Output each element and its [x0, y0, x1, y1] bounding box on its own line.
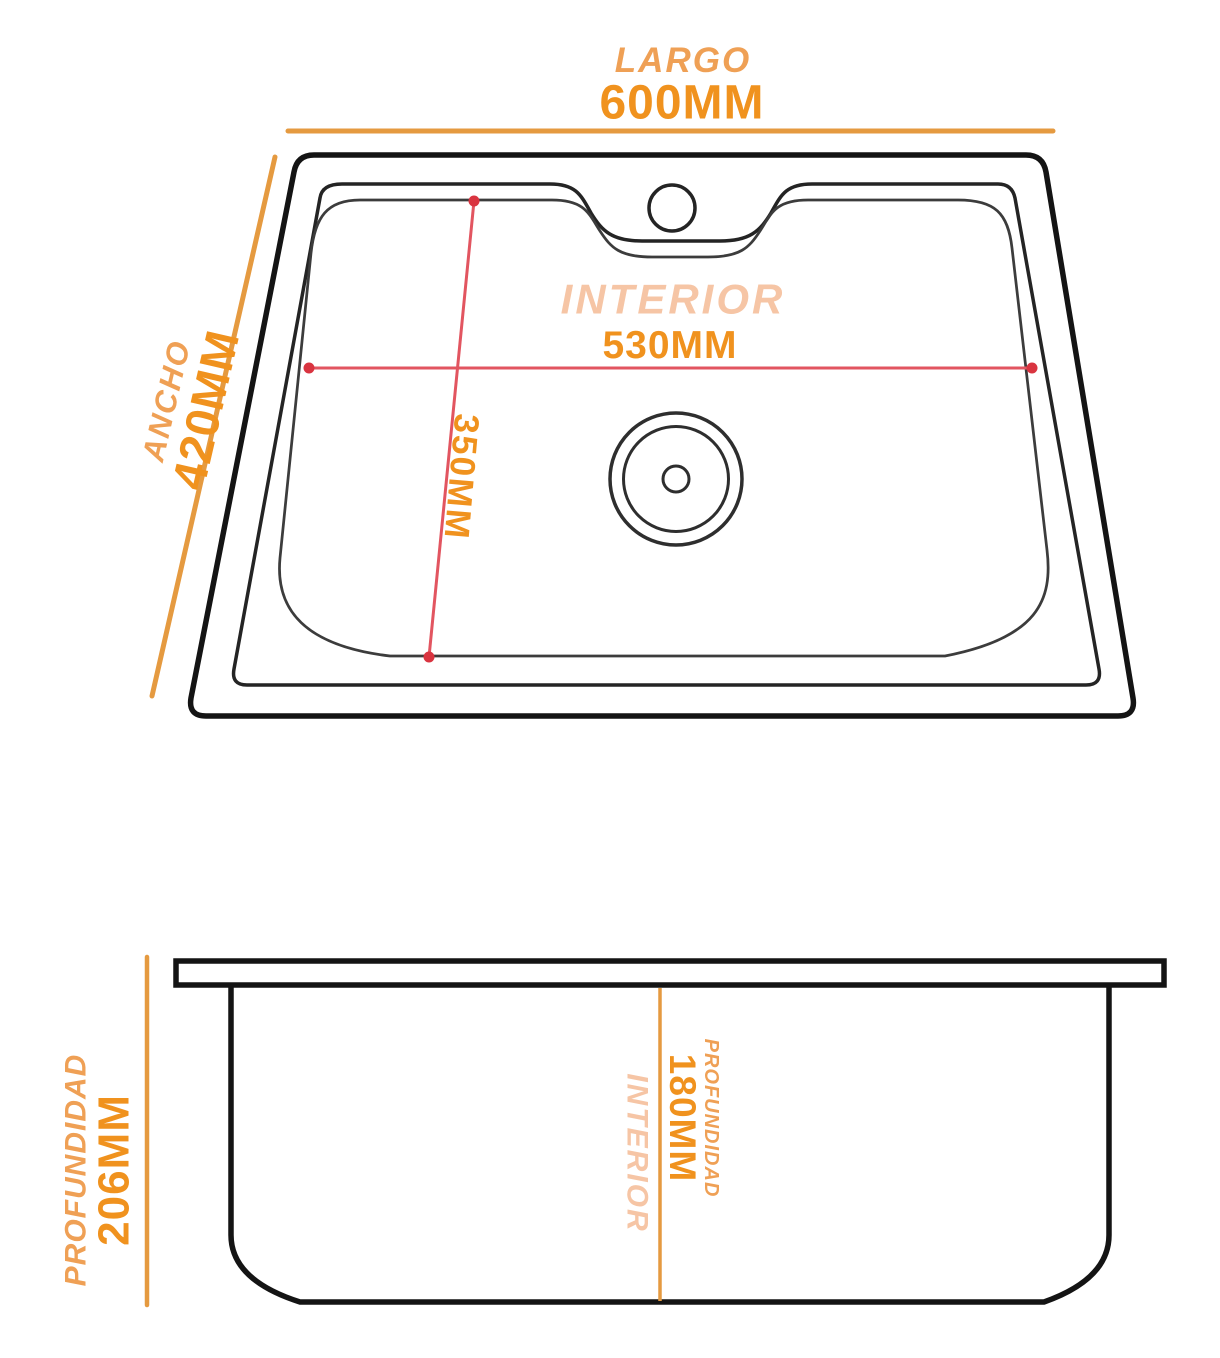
interior-value: 530MM — [602, 326, 737, 366]
dimension-endpoint-dot — [424, 652, 435, 663]
sink-rim-plate — [176, 961, 1164, 985]
profundidad-dimension-label: PROFUNDIDAD 206MM — [61, 1054, 136, 1287]
sink-dimensions-diagram: LARGO 600MM ANCHO 420MM INTERIOR 530MM 3… — [0, 0, 1220, 1358]
drain-center-circle — [663, 466, 689, 492]
drain-outer-circle — [610, 413, 742, 545]
largo-label: LARGO — [615, 43, 751, 79]
side-view — [147, 957, 1164, 1305]
interior-depth-dimension-label: PROFUNDIDAD 180MM — [663, 1039, 721, 1198]
drain-middle-circle — [624, 427, 729, 532]
profundidad-label: PROFUNDIDAD — [61, 1054, 92, 1287]
sink-inner-rim — [234, 184, 1100, 685]
largo-value: 600MM — [599, 80, 764, 129]
dimension-endpoint-dot — [304, 363, 315, 374]
dimension-endpoint-dot — [1027, 363, 1038, 374]
interior-label: INTERIOR — [561, 279, 786, 322]
interior-profundidad-label: PROFUNDIDAD — [701, 1039, 721, 1198]
dimension-endpoint-dot — [469, 196, 480, 207]
line-art — [0, 0, 1220, 1358]
profundidad-value: 206MM — [92, 1054, 137, 1287]
interior-profundidad-value: 180MM — [663, 1039, 701, 1198]
sink-outer-rim — [191, 155, 1134, 716]
faucet-hole — [649, 185, 695, 231]
side-interior-label: INTERIOR — [621, 1073, 652, 1232]
top-view — [152, 131, 1133, 716]
drain — [610, 413, 742, 545]
